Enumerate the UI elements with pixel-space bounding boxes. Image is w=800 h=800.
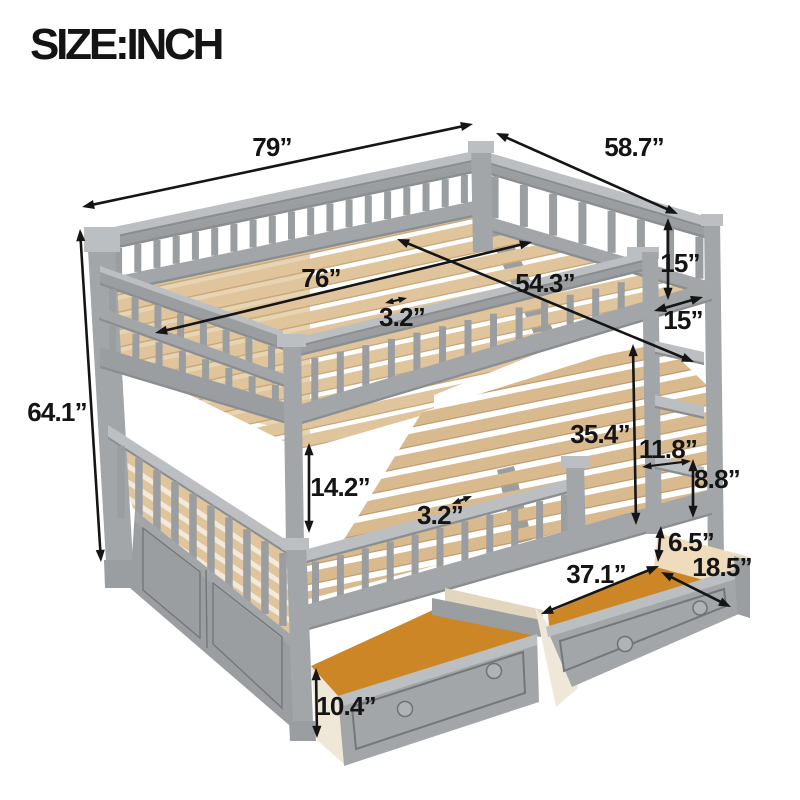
svg-text:15”: 15”	[663, 305, 703, 335]
svg-text:11.8”: 11.8”	[639, 434, 697, 464]
svg-text:15”: 15”	[660, 248, 700, 278]
svg-text:37.1”: 37.1”	[566, 559, 626, 589]
svg-text:3.2”: 3.2”	[417, 500, 463, 530]
svg-text:54.3”: 54.3”	[515, 268, 575, 298]
svg-text:18.5”: 18.5”	[692, 552, 752, 582]
svg-text:SIZE:INCH: SIZE:INCH	[30, 20, 222, 69]
svg-text:79”: 79”	[252, 132, 292, 162]
svg-text:10.4”: 10.4”	[316, 691, 376, 721]
svg-text:58.7”: 58.7”	[604, 132, 664, 162]
svg-text:64.1”: 64.1”	[27, 397, 87, 427]
svg-text:35.4”: 35.4”	[570, 419, 630, 449]
svg-text:14.2”: 14.2”	[310, 472, 370, 502]
svg-text:8.8”: 8.8”	[694, 464, 740, 494]
svg-text:3.2”: 3.2”	[379, 302, 425, 332]
svg-text:76”: 76”	[301, 263, 341, 293]
